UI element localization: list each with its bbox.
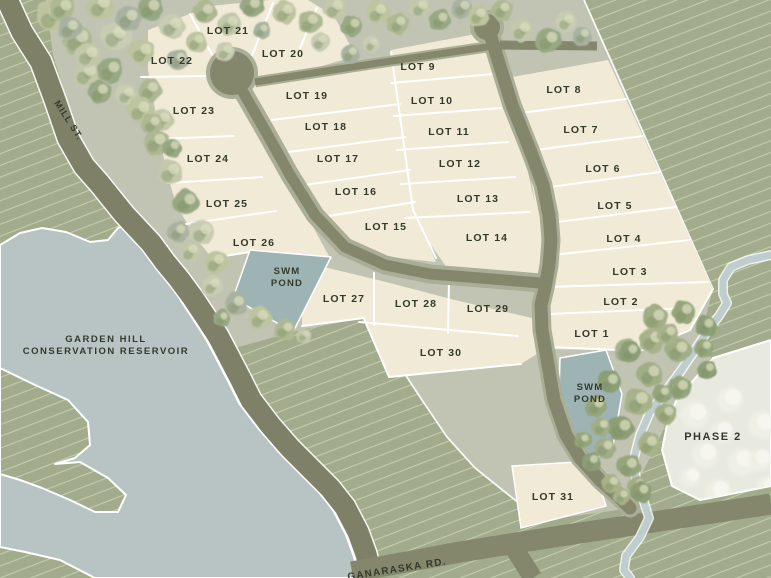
svg-text:LOT 3: LOT 3 — [612, 266, 647, 278]
svg-text:CONSERVATION RESERVOIR: CONSERVATION RESERVOIR — [23, 346, 189, 357]
svg-text:LOT 27: LOT 27 — [323, 293, 365, 305]
svg-text:LOT 1: LOT 1 — [574, 328, 609, 340]
svg-text:LOT 4: LOT 4 — [606, 233, 641, 245]
svg-text:LOT 23: LOT 23 — [173, 105, 215, 117]
svg-text:LOT 16: LOT 16 — [335, 186, 377, 198]
svg-text:LOT 24: LOT 24 — [187, 153, 229, 165]
svg-text:LOT 15: LOT 15 — [365, 221, 407, 233]
svg-text:LOT 19: LOT 19 — [286, 90, 328, 102]
svg-text:LOT 14: LOT 14 — [466, 232, 508, 244]
svg-text:LOT 25: LOT 25 — [206, 198, 248, 210]
svg-text:LOT 5: LOT 5 — [597, 200, 632, 212]
svg-text:LOT 6: LOT 6 — [585, 163, 620, 175]
svg-text:LOT 29: LOT 29 — [467, 303, 509, 315]
svg-text:LOT 10: LOT 10 — [411, 95, 453, 107]
svg-text:LOT 7: LOT 7 — [563, 124, 598, 136]
svg-text:POND: POND — [574, 394, 606, 405]
svg-text:LOT 31: LOT 31 — [532, 491, 574, 503]
svg-text:LOT 21: LOT 21 — [207, 25, 249, 37]
svg-text:LOT 8: LOT 8 — [546, 84, 581, 96]
svg-text:LOT 9: LOT 9 — [400, 61, 435, 73]
svg-text:GARDEN HILL: GARDEN HILL — [65, 334, 146, 345]
svg-text:LOT 13: LOT 13 — [457, 193, 499, 205]
svg-text:LOT 28: LOT 28 — [395, 298, 437, 310]
svg-text:LOT 20: LOT 20 — [262, 48, 304, 60]
svg-text:LOT 30: LOT 30 — [420, 347, 462, 359]
svg-text:LOT 11: LOT 11 — [428, 126, 470, 138]
svg-text:SWM: SWM — [274, 266, 301, 277]
svg-text:SWM: SWM — [577, 382, 604, 393]
svg-text:LOT 17: LOT 17 — [317, 153, 359, 165]
svg-text:LOT 22: LOT 22 — [151, 55, 193, 67]
svg-text:LOT 2: LOT 2 — [603, 296, 638, 308]
svg-text:LOT 12: LOT 12 — [439, 158, 481, 170]
svg-text:PHASE 2: PHASE 2 — [684, 431, 742, 443]
svg-text:LOT 26: LOT 26 — [233, 237, 275, 249]
svg-text:LOT 18: LOT 18 — [305, 121, 347, 133]
svg-text:POND: POND — [271, 278, 303, 289]
